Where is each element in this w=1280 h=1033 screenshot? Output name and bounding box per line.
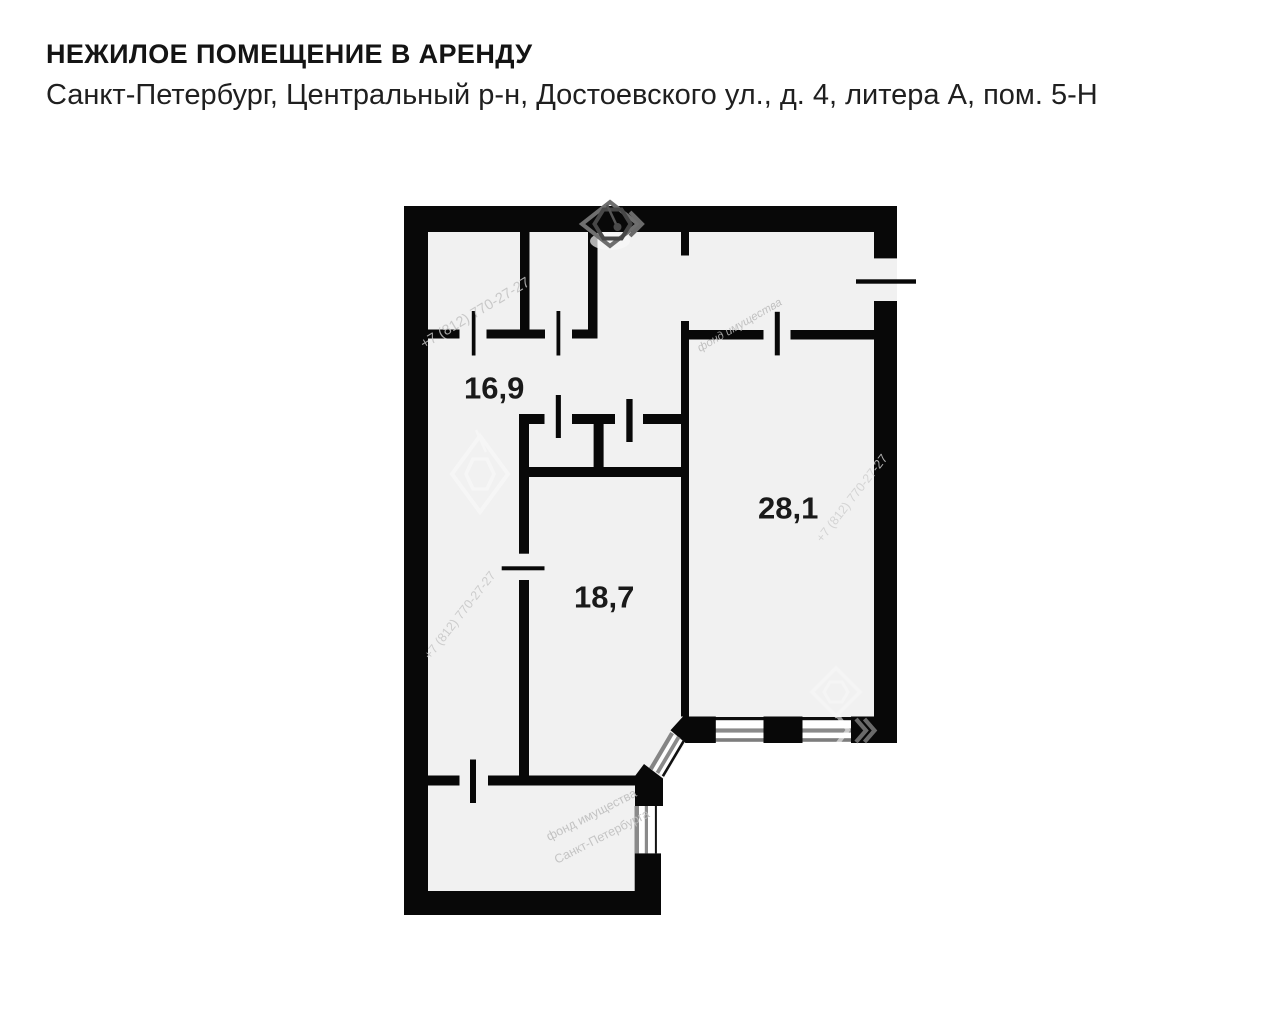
svg-text:28,1: 28,1	[758, 491, 818, 526]
svg-text:18,7: 18,7	[574, 580, 634, 615]
svg-text:16,9: 16,9	[464, 371, 524, 406]
